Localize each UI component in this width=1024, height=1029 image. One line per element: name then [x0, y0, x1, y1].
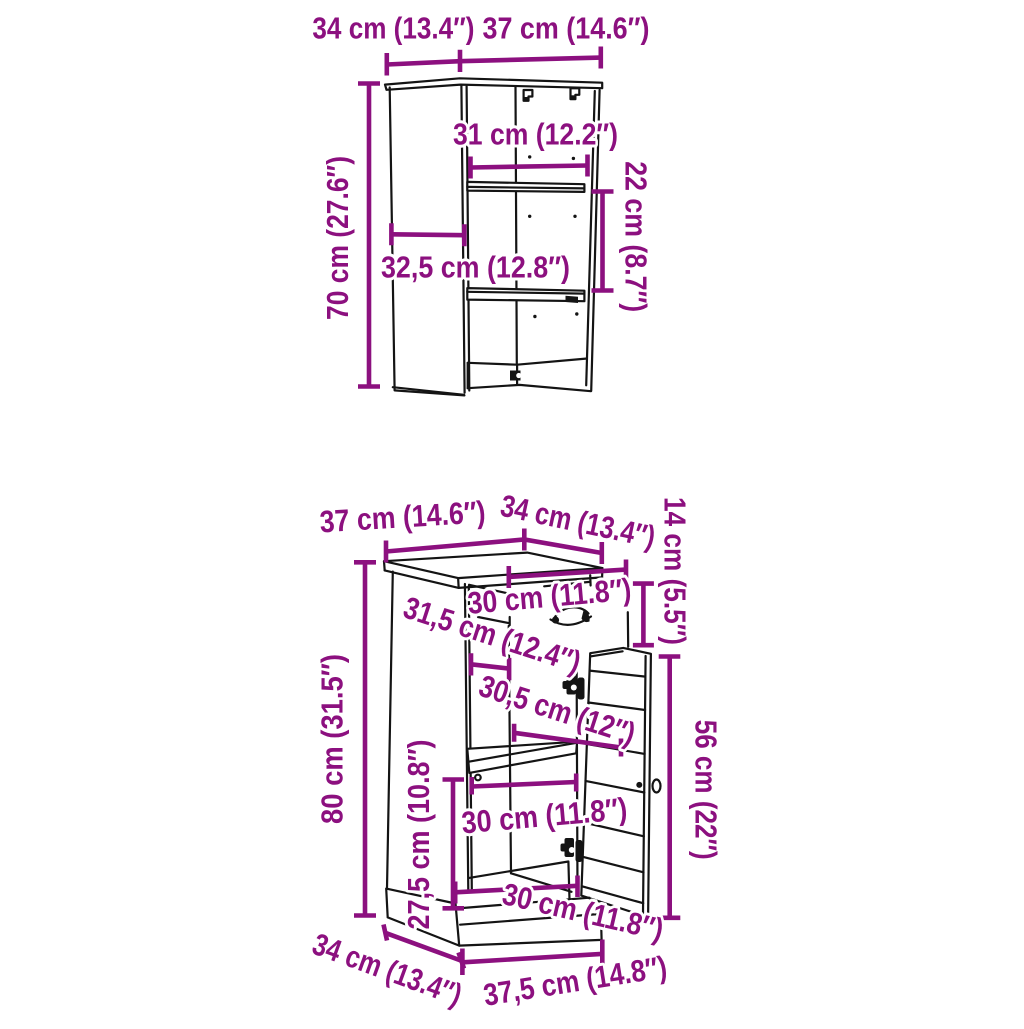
svg-text:14 cm (5.5″): 14 cm (5.5″) [658, 497, 693, 645]
svg-text:22 cm (8.7″): 22 cm (8.7″) [619, 161, 654, 312]
svg-text:37 cm (14.6″): 37 cm (14.6″) [483, 11, 650, 46]
svg-text:32,5 cm (12.8″): 32,5 cm (12.8″) [381, 250, 570, 285]
svg-text:31 cm (12.2″): 31 cm (12.2″) [453, 117, 618, 152]
svg-text:80 cm (31.5″): 80 cm (31.5″) [314, 654, 349, 824]
svg-text:27,5 cm (10.8″): 27,5 cm (10.8″) [401, 740, 436, 930]
svg-text:34 cm (13.4″): 34 cm (13.4″) [312, 11, 474, 46]
svg-text:70 cm (27.6″): 70 cm (27.6″) [320, 156, 355, 320]
svg-text:56 cm (22″): 56 cm (22″) [688, 720, 723, 860]
